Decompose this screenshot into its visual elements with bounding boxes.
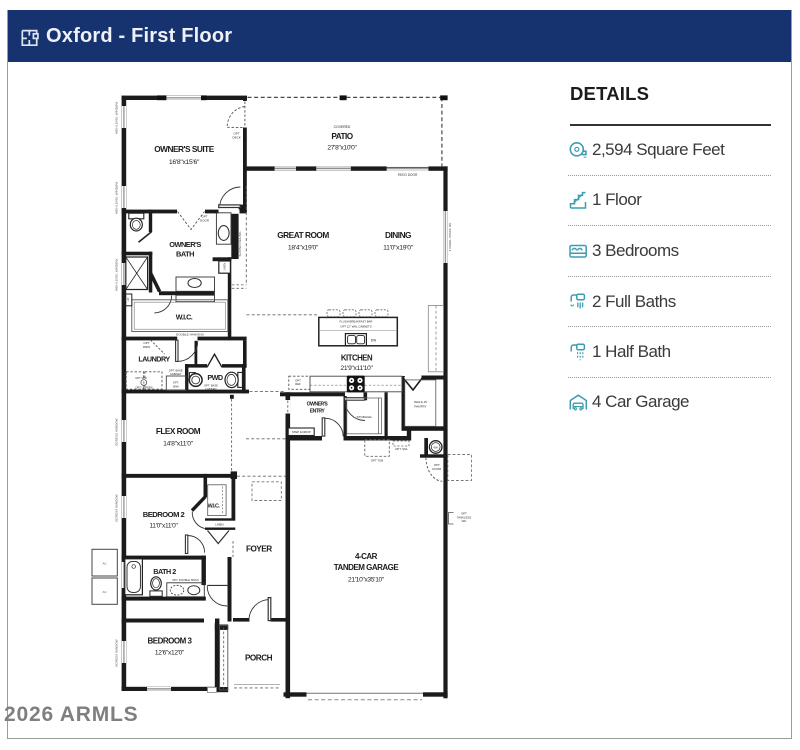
svg-text:WH: WH <box>462 519 467 523</box>
svg-text:OPT. SNL: OPT. SNL <box>395 447 408 451</box>
svg-text:LINEN: LINEN <box>223 263 227 271</box>
svg-text:SINK: SINK <box>173 384 179 388</box>
svg-text:COVERED: COVERED <box>334 125 351 129</box>
svg-text:DECK: DECK <box>232 136 240 140</box>
svg-text:OWNER'S SUITE: OWNER'S SUITE <box>154 144 215 154</box>
svg-text:4 PANEL STACK DR: 4 PANEL STACK DR <box>448 222 452 251</box>
svg-text:HIGH LEVEL WINDOW: HIGH LEVEL WINDOW <box>115 182 119 215</box>
svg-text:LIN: LIN <box>127 297 130 301</box>
svg-text:EGRESS WINDOW: EGRESS WINDOW <box>115 639 119 666</box>
svg-text:DOOR: DOOR <box>432 467 442 471</box>
svg-text:LINEN: LINEN <box>215 522 223 526</box>
svg-text:11'0"x19'0": 11'0"x19'0" <box>383 245 414 252</box>
svg-text:DOUBLE HANGING: DOUBLE HANGING <box>176 332 205 336</box>
svg-text:PANTRY: PANTRY <box>414 405 426 409</box>
svg-text:16'8"x15'6": 16'8"x15'6" <box>169 159 200 166</box>
svg-text:B: B <box>143 381 145 385</box>
svg-text:WH: WH <box>434 445 438 449</box>
svg-text:ENTRY: ENTRY <box>310 409 326 415</box>
svg-text:OPT 12" WAL CABNETS: OPT 12" WAL CABNETS <box>340 324 371 328</box>
svg-text:W.I.C.: W.I.C. <box>208 504 221 510</box>
svg-text:12'6"x12'0": 12'6"x12'0" <box>155 650 185 657</box>
svg-text:STORAGE: STORAGE <box>356 415 371 419</box>
svg-text:4-CAR: 4-CAR <box>355 552 378 561</box>
svg-text:21'9"x11'10": 21'9"x11'10" <box>340 365 373 372</box>
svg-text:BEDROOM 3: BEDROOM 3 <box>148 637 193 646</box>
svg-text:KITCHEN: KITCHEN <box>341 354 373 363</box>
svg-text:GREAT ROOM: GREAT ROOM <box>277 230 329 240</box>
svg-text:BATH: BATH <box>176 250 194 259</box>
svg-text:DOOR: DOOR <box>200 219 210 223</box>
svg-text:SLOPED CEILING: SLOPED CEILING <box>238 231 242 257</box>
svg-text:CABINET: CABINET <box>205 387 217 391</box>
svg-text:CABINET: CABINET <box>170 372 182 376</box>
svg-text:PWD: PWD <box>207 373 223 382</box>
svg-text:OPT.: OPT. <box>173 381 179 385</box>
svg-text:PORCH: PORCH <box>245 654 273 663</box>
svg-text:FLEX ROOM: FLEX ROOM <box>156 427 201 436</box>
svg-text:W.I.C.: W.I.C. <box>176 313 193 322</box>
svg-text:BATH 2: BATH 2 <box>153 567 176 576</box>
svg-text:DINING: DINING <box>385 230 411 240</box>
svg-text:27'8"x10'0": 27'8"x10'0" <box>327 145 357 152</box>
svg-text:14'8"x11'0": 14'8"x11'0" <box>163 441 194 448</box>
svg-text:EGRESS WINDOW: EGRESS WINDOW <box>115 418 119 445</box>
svg-text:PATIO DOOR: PATIO DOOR <box>398 173 418 177</box>
svg-text:BEDROOM 2: BEDROOM 2 <box>143 510 185 519</box>
svg-text:OWNER'S: OWNER'S <box>307 402 329 408</box>
svg-text:TANDEM GARAGE: TANDEM GARAGE <box>334 563 400 572</box>
svg-text:EGRESS WINDOW: EGRESS WINDOW <box>115 494 119 521</box>
svg-text:WALK-IN: WALK-IN <box>414 400 427 404</box>
svg-text:FLUSH BREAKFAST BAR: FLUSH BREAKFAST BAR <box>340 320 373 324</box>
svg-text:11'0"x11'0": 11'0"x11'0" <box>149 523 178 530</box>
svg-text:HIGH LEVEL WINDOW: HIGH LEVEL WINDOW <box>115 102 119 135</box>
svg-text:FOYER: FOYER <box>246 545 272 554</box>
svg-text:21'10"x35'10": 21'10"x35'10" <box>348 577 385 584</box>
svg-text:LAUNDRY: LAUNDRY <box>138 355 170 364</box>
svg-text:OPT. BASE: OPT. BASE <box>204 384 218 388</box>
svg-text:DW: DW <box>371 339 376 343</box>
svg-text:DRW: DRW <box>143 345 150 349</box>
svg-text:OPT. BASE: OPT. BASE <box>169 369 183 373</box>
svg-text:REF: REF <box>295 382 301 386</box>
svg-text:OWNER'S: OWNER'S <box>169 240 201 249</box>
svg-text:PATIO: PATIO <box>331 132 353 141</box>
svg-text:HIGH LEVEL WINDOW: HIGH LEVEL WINDOW <box>115 259 119 292</box>
svg-text:OPT W/D: OPT W/D <box>135 376 147 380</box>
svg-text:OPT UPPERS: OPT UPPERS <box>135 386 152 390</box>
svg-text:OPT. DOUBLE SINKS: OPT. DOUBLE SINKS <box>172 578 199 582</box>
svg-text:OPT TUB: OPT TUB <box>371 459 383 463</box>
svg-text:18'4"x19'0": 18'4"x19'0" <box>288 245 319 252</box>
svg-text:STEP & DROP: STEP & DROP <box>292 430 311 434</box>
